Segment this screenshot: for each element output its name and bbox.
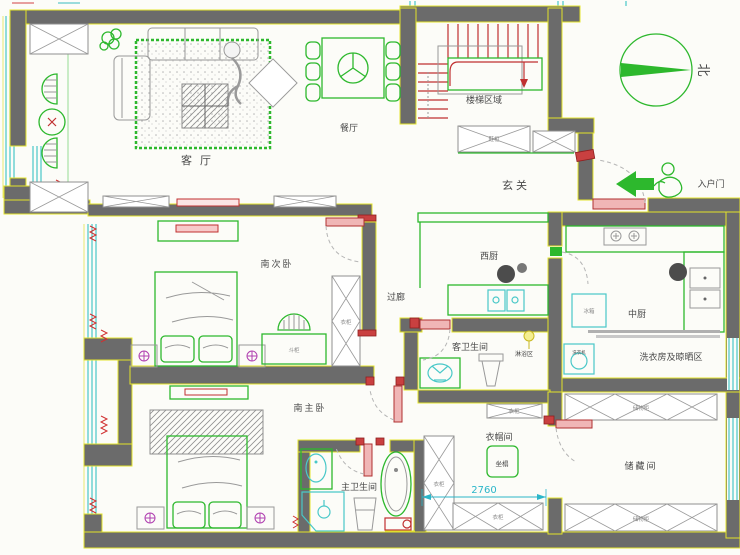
floor-plan-drawing: 客厅 餐厅 楼梯区域 鞋柜 bbox=[0, 0, 740, 555]
windows bbox=[3, 1, 626, 516]
north-arrow-icon bbox=[621, 63, 691, 77]
floor-drain bbox=[385, 518, 415, 531]
dining-room: 餐厅 bbox=[306, 38, 400, 134]
closet-cabinet-top-label: 衣柜 bbox=[508, 407, 520, 415]
guest-bathroom-label: 客卫生间 bbox=[452, 341, 488, 353]
floor-plan-canvas: 客厅 餐厅 楼梯区域 鞋柜 bbox=[0, 0, 740, 555]
bedside-rug bbox=[278, 314, 310, 330]
storage-door-leaf bbox=[556, 420, 592, 428]
tv-cabinet bbox=[170, 386, 248, 399]
washing-machine: 洗衣机 bbox=[564, 344, 594, 374]
guest-bathroom-door-leaf bbox=[420, 320, 450, 329]
refrigerator-label: 冰箱 bbox=[583, 307, 595, 315]
master-bathroom-door-leaf bbox=[364, 444, 372, 476]
storage-cabinet-bottom-label: 储物柜 bbox=[633, 515, 650, 523]
storage-room: 储物柜 储物柜 储藏间 bbox=[565, 394, 717, 531]
dining-room-label: 餐厅 bbox=[340, 122, 358, 134]
closet-cabinet-bottom: 衣柜 bbox=[453, 503, 543, 530]
nightstand-left bbox=[137, 507, 164, 529]
cloakroom: 衣柜 衣柜 衣柜 坐榻 2760 衣帽间 bbox=[422, 404, 546, 530]
west-kitchen: 西厨 bbox=[418, 213, 548, 315]
master-bedroom-door-leaf bbox=[394, 386, 402, 422]
storage-cabinet-top-label: 储物柜 bbox=[633, 404, 650, 412]
storage-room-label: 储藏间 bbox=[624, 460, 657, 472]
main-kitchen-label: 中厨 bbox=[628, 308, 646, 320]
nightstand-left bbox=[131, 345, 157, 367]
seat-label: 坐榻 bbox=[496, 459, 510, 468]
washing-machine-label: 洗衣机 bbox=[572, 349, 586, 356]
wardrobe: 衣柜 bbox=[332, 276, 360, 366]
plant-icon bbox=[100, 29, 121, 50]
person-icon bbox=[654, 163, 682, 197]
shower-head-icon bbox=[524, 331, 534, 349]
dresser bbox=[158, 221, 238, 241]
sliding-door-panel bbox=[596, 335, 720, 338]
closet-cabinet-left: 衣柜 bbox=[424, 436, 454, 530]
stove-icon bbox=[604, 228, 646, 245]
coffee-table bbox=[182, 84, 228, 128]
second-bedroom: 斗柜 衣柜 南次卧 bbox=[131, 221, 360, 367]
bottom-cabinet-2 bbox=[274, 196, 336, 207]
chest-label: 斗柜 bbox=[288, 346, 300, 354]
laundry-label: 洗衣房及晾晒区 bbox=[639, 351, 702, 363]
foyer-label: 玄关 bbox=[502, 178, 530, 192]
left-cabinet-top bbox=[30, 24, 88, 54]
second-bedroom-door-leaf bbox=[326, 218, 364, 226]
second-bedroom-label: 南次卧 bbox=[260, 258, 293, 270]
sliding-door-track bbox=[588, 330, 720, 333]
bed bbox=[155, 272, 237, 366]
foyer-small-cabinet bbox=[533, 131, 575, 152]
storage-cabinet-bottom: 储物柜 bbox=[565, 504, 717, 531]
compass: 北 bbox=[620, 34, 710, 106]
master-bedroom-label: 南主卧 bbox=[293, 402, 326, 414]
entry-door-leaf bbox=[593, 199, 645, 209]
refrigerator: 冰箱 bbox=[572, 294, 606, 327]
nightstand-right bbox=[239, 345, 265, 367]
kitchen-door-sill bbox=[550, 247, 562, 256]
stair-down-arrow bbox=[520, 62, 528, 88]
shoe-cabinet-label: 鞋柜 bbox=[488, 135, 500, 143]
bar-stool bbox=[497, 265, 515, 283]
right-wall-windows bbox=[727, 338, 739, 500]
armchair-top-icon bbox=[42, 74, 57, 104]
master-bathroom-label: 主卫生间 bbox=[341, 481, 377, 493]
main-kitchen: 冰箱 中厨 bbox=[550, 226, 724, 332]
laundry: 洗衣机 洗衣房及晾晒区 bbox=[564, 330, 720, 374]
stair-area-label: 楼梯区域 bbox=[466, 94, 502, 106]
chest-of-drawers: 斗柜 bbox=[262, 334, 326, 364]
guest-bathroom: 淋浴区 客卫生间 bbox=[420, 331, 534, 388]
bathtub bbox=[381, 452, 411, 516]
cloakroom-label: 衣帽间 bbox=[485, 431, 512, 443]
storage-cabinet-top: 储物柜 bbox=[565, 394, 717, 420]
dimension-label: 2760 bbox=[471, 485, 496, 496]
closet-cabinet-label: 衣柜 bbox=[433, 480, 445, 488]
closet-cabinet-bottom-label: 衣柜 bbox=[492, 513, 504, 521]
armchair-bottom-icon bbox=[42, 138, 57, 168]
red-runner bbox=[177, 199, 239, 206]
entry-arrow-icon bbox=[616, 171, 654, 197]
living-room-label: 客厅 bbox=[181, 153, 219, 167]
entry-door-label: 入户门 bbox=[697, 178, 724, 190]
foyer: 鞋柜 玄关 bbox=[458, 126, 575, 192]
toilet bbox=[354, 498, 376, 530]
seat-bench: 坐榻 bbox=[487, 446, 518, 477]
north-label: 北 bbox=[695, 63, 710, 76]
left-cabinet-bottom bbox=[30, 182, 88, 212]
nightstand-right bbox=[247, 507, 274, 529]
table-decor bbox=[48, 118, 56, 126]
west-kitchen-label: 西厨 bbox=[480, 251, 498, 262]
corridor-label: 过廊 bbox=[387, 291, 405, 303]
bottom-cabinet-1 bbox=[103, 196, 169, 207]
toilet bbox=[479, 354, 503, 386]
living-room: 客厅 bbox=[30, 24, 336, 212]
kitchen-sink bbox=[669, 263, 720, 308]
shower-zone-label: 淋浴区 bbox=[515, 350, 533, 358]
wardrobe-label: 衣柜 bbox=[340, 318, 352, 326]
master-bathroom: 主卫生间 bbox=[301, 449, 415, 531]
vanity-sink bbox=[420, 358, 460, 388]
stair-area: 楼梯区域 bbox=[418, 24, 542, 118]
closet-cabinet-top: 衣柜 bbox=[487, 404, 542, 418]
